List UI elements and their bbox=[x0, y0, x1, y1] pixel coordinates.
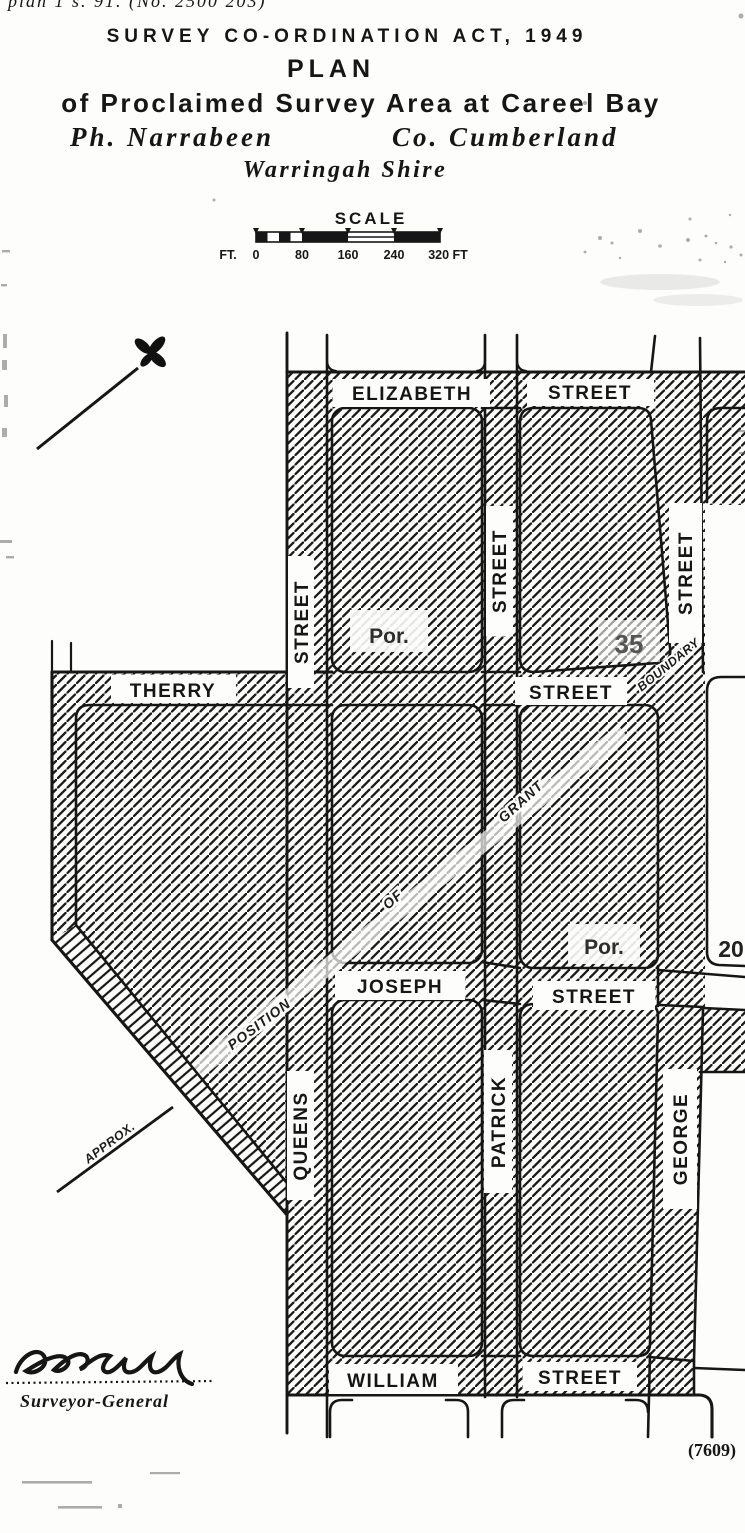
scale-tick-320: 320 FT bbox=[428, 248, 468, 262]
north-arrow-fleur bbox=[125, 324, 179, 378]
portion-a-number: 35 bbox=[615, 629, 644, 659]
portion-b-label: Por. bbox=[584, 936, 624, 959]
annotation-approx: APPROX. bbox=[81, 1119, 138, 1167]
north-arrow bbox=[37, 324, 179, 449]
street-label-george-suffix: STREET bbox=[676, 531, 697, 615]
survey-plan-canvas: plan 1 s. 91. (No. 2500 203) SURVEY CO-O… bbox=[0, 0, 745, 1533]
scale-heading: SCALE bbox=[335, 209, 408, 228]
title-block: plan 1 s. 91. (No. 2500 203) SURVEY CO-O… bbox=[6, 0, 661, 183]
portion-a-label: Por. bbox=[369, 625, 409, 648]
street-label-william-suffix: STREET bbox=[538, 1368, 622, 1389]
proclaimed-area-hatching bbox=[52, 372, 745, 1395]
street-label-george: GEORGE bbox=[671, 1093, 692, 1185]
street-label-queens: QUEENS bbox=[291, 1091, 312, 1180]
portion-b-number: 20 bbox=[718, 936, 744, 962]
shire-label: Warringah Shire bbox=[243, 157, 447, 183]
scale-tick-80: 80 bbox=[295, 248, 309, 262]
scale-tick-240: 240 bbox=[384, 248, 405, 262]
street-label-elizabeth-suffix: STREET bbox=[548, 383, 632, 404]
scale-bar: SCALE FT. 0 80 160 240 320 FT bbox=[219, 209, 468, 262]
county-label: Co. Cumberland bbox=[392, 122, 619, 152]
file-note: plan 1 s. 91. (No. 2500 203) bbox=[6, 0, 267, 12]
street-label-joseph: JOSEPH bbox=[357, 977, 443, 998]
signature-title: Surveyor-General bbox=[20, 1391, 169, 1411]
parish-label: Ph. Narrabeen bbox=[69, 122, 274, 152]
scale-bar-segments bbox=[253, 228, 443, 242]
street-label-patrick: PATRICK bbox=[489, 1076, 510, 1168]
act-title: SURVEY CO-ORDINATION ACT, 1949 bbox=[107, 26, 588, 47]
subtitle: of Proclaimed Survey Area at Careel Bay bbox=[61, 88, 660, 118]
signature-block: Surveyor-General bbox=[6, 1352, 214, 1411]
street-label-elizabeth: ELIZABETH bbox=[352, 384, 472, 405]
scale-unit-prefix: FT. bbox=[219, 248, 236, 262]
street-label-joseph-suffix: STREET bbox=[552, 987, 636, 1008]
street-label-therry-suffix: STREET bbox=[529, 683, 613, 704]
plan-heading: PLAN bbox=[287, 55, 375, 83]
scale-tick-160: 160 bbox=[338, 248, 359, 262]
street-label-therry: THERRY bbox=[130, 681, 216, 702]
street-label-queens-suffix: STREET bbox=[292, 580, 313, 664]
surveyor-signature bbox=[16, 1352, 192, 1384]
plate-number: (7609) bbox=[688, 1440, 736, 1461]
scale-tick-0: 0 bbox=[253, 248, 260, 262]
street-label-patrick-suffix: STREET bbox=[490, 529, 511, 613]
survey-plan-page: plan 1 s. 91. (No. 2500 203) SURVEY CO-O… bbox=[0, 0, 745, 1533]
street-label-william: WILLIAM bbox=[347, 1371, 439, 1392]
